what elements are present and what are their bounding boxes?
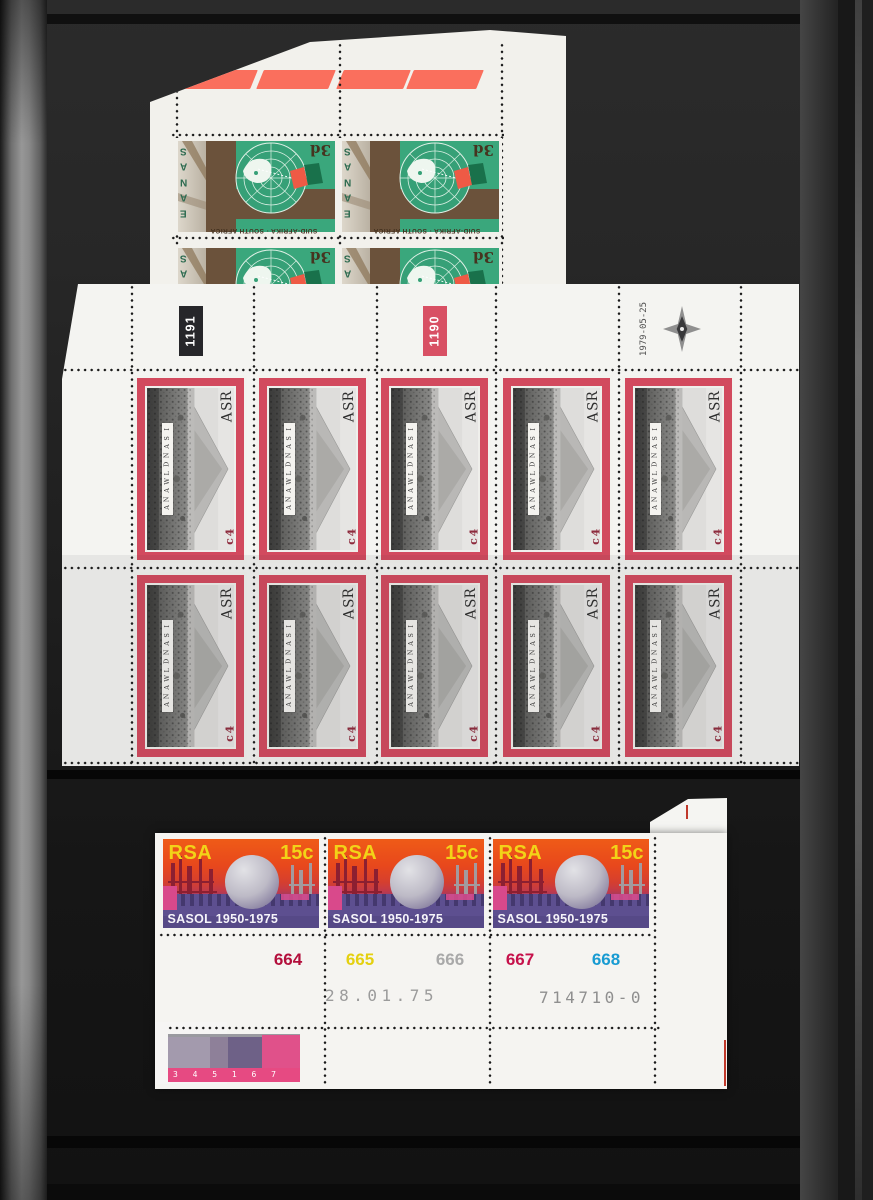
denomination-4c: 4c bbox=[714, 528, 722, 546]
isandlwana-title-ribbon: ISANDLWANA bbox=[284, 423, 295, 515]
cylinder-number: 665 bbox=[337, 950, 383, 970]
cylinder-number: 666 bbox=[427, 950, 473, 970]
selvage-dash-mark bbox=[256, 70, 336, 89]
isandlwana-stamp: RSA ISANDLWANA 4c bbox=[373, 370, 495, 567]
denomination-4c: 4c bbox=[470, 528, 478, 546]
sanae-denomination: 3d bbox=[473, 248, 494, 266]
sasol-caption: SASOL 1950-1975 bbox=[168, 912, 279, 926]
rsa-country-label: RSA bbox=[499, 842, 543, 865]
denomination-4c: 4c bbox=[592, 528, 600, 546]
color-strip-digits: 3 4 5 1 6 7 bbox=[168, 1068, 300, 1082]
page-right-highlight bbox=[855, 0, 862, 1200]
sheet-shadow bbox=[62, 555, 799, 766]
perforation-row bbox=[158, 932, 654, 938]
cylinder-number: 668 bbox=[583, 950, 629, 970]
isandlwana-title-ribbon: ISANDLWANA bbox=[162, 423, 173, 515]
pocket-edge-top bbox=[47, 14, 807, 24]
print-date: 1979-05-25 bbox=[639, 302, 649, 356]
sasol-stamp-art: RSA 15c SASOL 1950-1975 bbox=[328, 839, 484, 928]
magenta-block bbox=[163, 886, 177, 910]
sasol-sheet: RSA 15c SASOL 1950-1975 bbox=[155, 798, 727, 1089]
gas-sphere bbox=[555, 855, 609, 909]
red-guide-tick bbox=[686, 805, 688, 819]
isandlwana-sheet: 1191 1190 1979-05-25 bbox=[62, 284, 799, 766]
denomination-15c: 15c bbox=[445, 842, 478, 865]
print-date-box: 1979-05-25 bbox=[634, 300, 654, 358]
perforation-column bbox=[652, 835, 658, 1087]
sheet-serial-number: 714710-0 bbox=[539, 988, 644, 1007]
denomination-15c: 15c bbox=[280, 842, 313, 865]
color-control-strip: 3 4 5 1 6 7 bbox=[168, 1034, 300, 1082]
sanae-expedition-label: SANAE bbox=[180, 143, 187, 220]
sasol-caption: SASOL 1950-1975 bbox=[498, 912, 609, 926]
denomination-4c: 4c bbox=[348, 528, 356, 546]
selvage-dash-mark bbox=[406, 70, 484, 89]
denomination-15c: 15c bbox=[610, 842, 643, 865]
rsa-country-label: RSA bbox=[222, 391, 232, 423]
isandlwana-stamp: RSA ISANDLWANA 4c bbox=[251, 370, 373, 567]
isandlwana-stamp: RSA ISANDLWANA 4c bbox=[617, 370, 739, 567]
sasol-stamp-row: RSA 15c SASOL 1950-1975 bbox=[158, 835, 653, 932]
rsa-country-label: RSA bbox=[466, 391, 476, 423]
cylinder-number: 664 bbox=[265, 950, 311, 970]
page-right-gap bbox=[838, 0, 855, 1200]
star-center-dot bbox=[680, 327, 684, 331]
sasol-print-date: 28.01.75 bbox=[325, 986, 438, 1005]
page-right-edge bbox=[800, 0, 838, 1200]
isandlwana-stamp: RSA ISANDLWANA 4c bbox=[129, 370, 251, 567]
sanae-denomination: 3d bbox=[310, 141, 331, 159]
isandlwana-title-ribbon: ISANDLWANA bbox=[650, 423, 661, 515]
pocket-edge-middle bbox=[47, 770, 807, 779]
cylinder-number-black: 1191 bbox=[184, 315, 198, 346]
sanae-country-inscription: SUID-AFRIKA · SOUTH AFRICA bbox=[363, 227, 491, 234]
denomination-4c: 4c bbox=[226, 528, 234, 546]
cylinder-number: 667 bbox=[497, 950, 543, 970]
cylinder-number-black-box: 1191 bbox=[179, 306, 203, 356]
sasol-stamp-art: RSA 15c SASOL 1950-1975 bbox=[163, 839, 319, 928]
perforation-column bbox=[322, 835, 328, 1087]
sanae-denomination: 3d bbox=[473, 141, 494, 159]
isandlwana-stamp: RSA ISANDLWANA 4c bbox=[495, 370, 617, 567]
perforation-row bbox=[167, 1025, 663, 1031]
sanae-denomination: 3d bbox=[310, 248, 331, 266]
gas-sphere bbox=[390, 855, 444, 909]
cylinder-number-red: 1190 bbox=[428, 315, 442, 346]
sanae-country-inscription: SUID-AFRIKA · SOUTH AFRICA bbox=[200, 227, 328, 234]
isandlwana-title-ribbon: ISANDLWANA bbox=[406, 423, 417, 515]
album-page-scan: SANAE 3d SUID-AFRIKA · SOUTH AFRICA bbox=[0, 0, 873, 1200]
red-guide-line bbox=[724, 1040, 726, 1086]
pocket-edge-lower bbox=[47, 1136, 807, 1148]
sasol-stamp-art: RSA 15c SASOL 1950-1975 bbox=[493, 839, 649, 928]
selvage-dash-mark bbox=[336, 70, 411, 89]
sasol-stamp: RSA 15c SASOL 1950-1975 bbox=[323, 835, 488, 932]
isandlwana-title-ribbon: ISANDLWANA bbox=[528, 423, 539, 515]
selvage-dash-mark bbox=[176, 70, 258, 89]
sasol-caption: SASOL 1950-1975 bbox=[333, 912, 444, 926]
sanae-stamp: SANAE 3d SUID-AFRIKA · SOUTH AFRICA bbox=[175, 138, 339, 235]
sasol-stamp: RSA 15c SASOL 1950-1975 bbox=[488, 835, 653, 932]
gas-sphere bbox=[225, 855, 279, 909]
rsa-country-label: RSA bbox=[344, 391, 354, 423]
sanae-stamp: SANAE 3d SUID-AFRIKA · SOUTH AFRICA bbox=[339, 138, 503, 235]
magenta-block bbox=[328, 886, 342, 910]
rsa-country-label: RSA bbox=[588, 391, 598, 423]
page-right-cover bbox=[862, 0, 873, 1200]
rsa-country-label: RSA bbox=[169, 842, 213, 865]
sanae-sheet: SANAE 3d SUID-AFRIKA · SOUTH AFRICA bbox=[150, 30, 566, 288]
cylinder-number-red-box: 1190 bbox=[423, 306, 447, 356]
sanae-expedition-label: SANAE bbox=[344, 143, 351, 220]
rsa-country-label: RSA bbox=[334, 842, 378, 865]
rsa-country-label: RSA bbox=[710, 391, 720, 423]
sasol-stamp: RSA 15c SASOL 1950-1975 bbox=[158, 835, 323, 932]
page-bottom-edge bbox=[47, 1184, 873, 1200]
binding-shade bbox=[0, 0, 47, 1200]
perforation-column bbox=[487, 835, 493, 1087]
magenta-block bbox=[493, 886, 507, 910]
